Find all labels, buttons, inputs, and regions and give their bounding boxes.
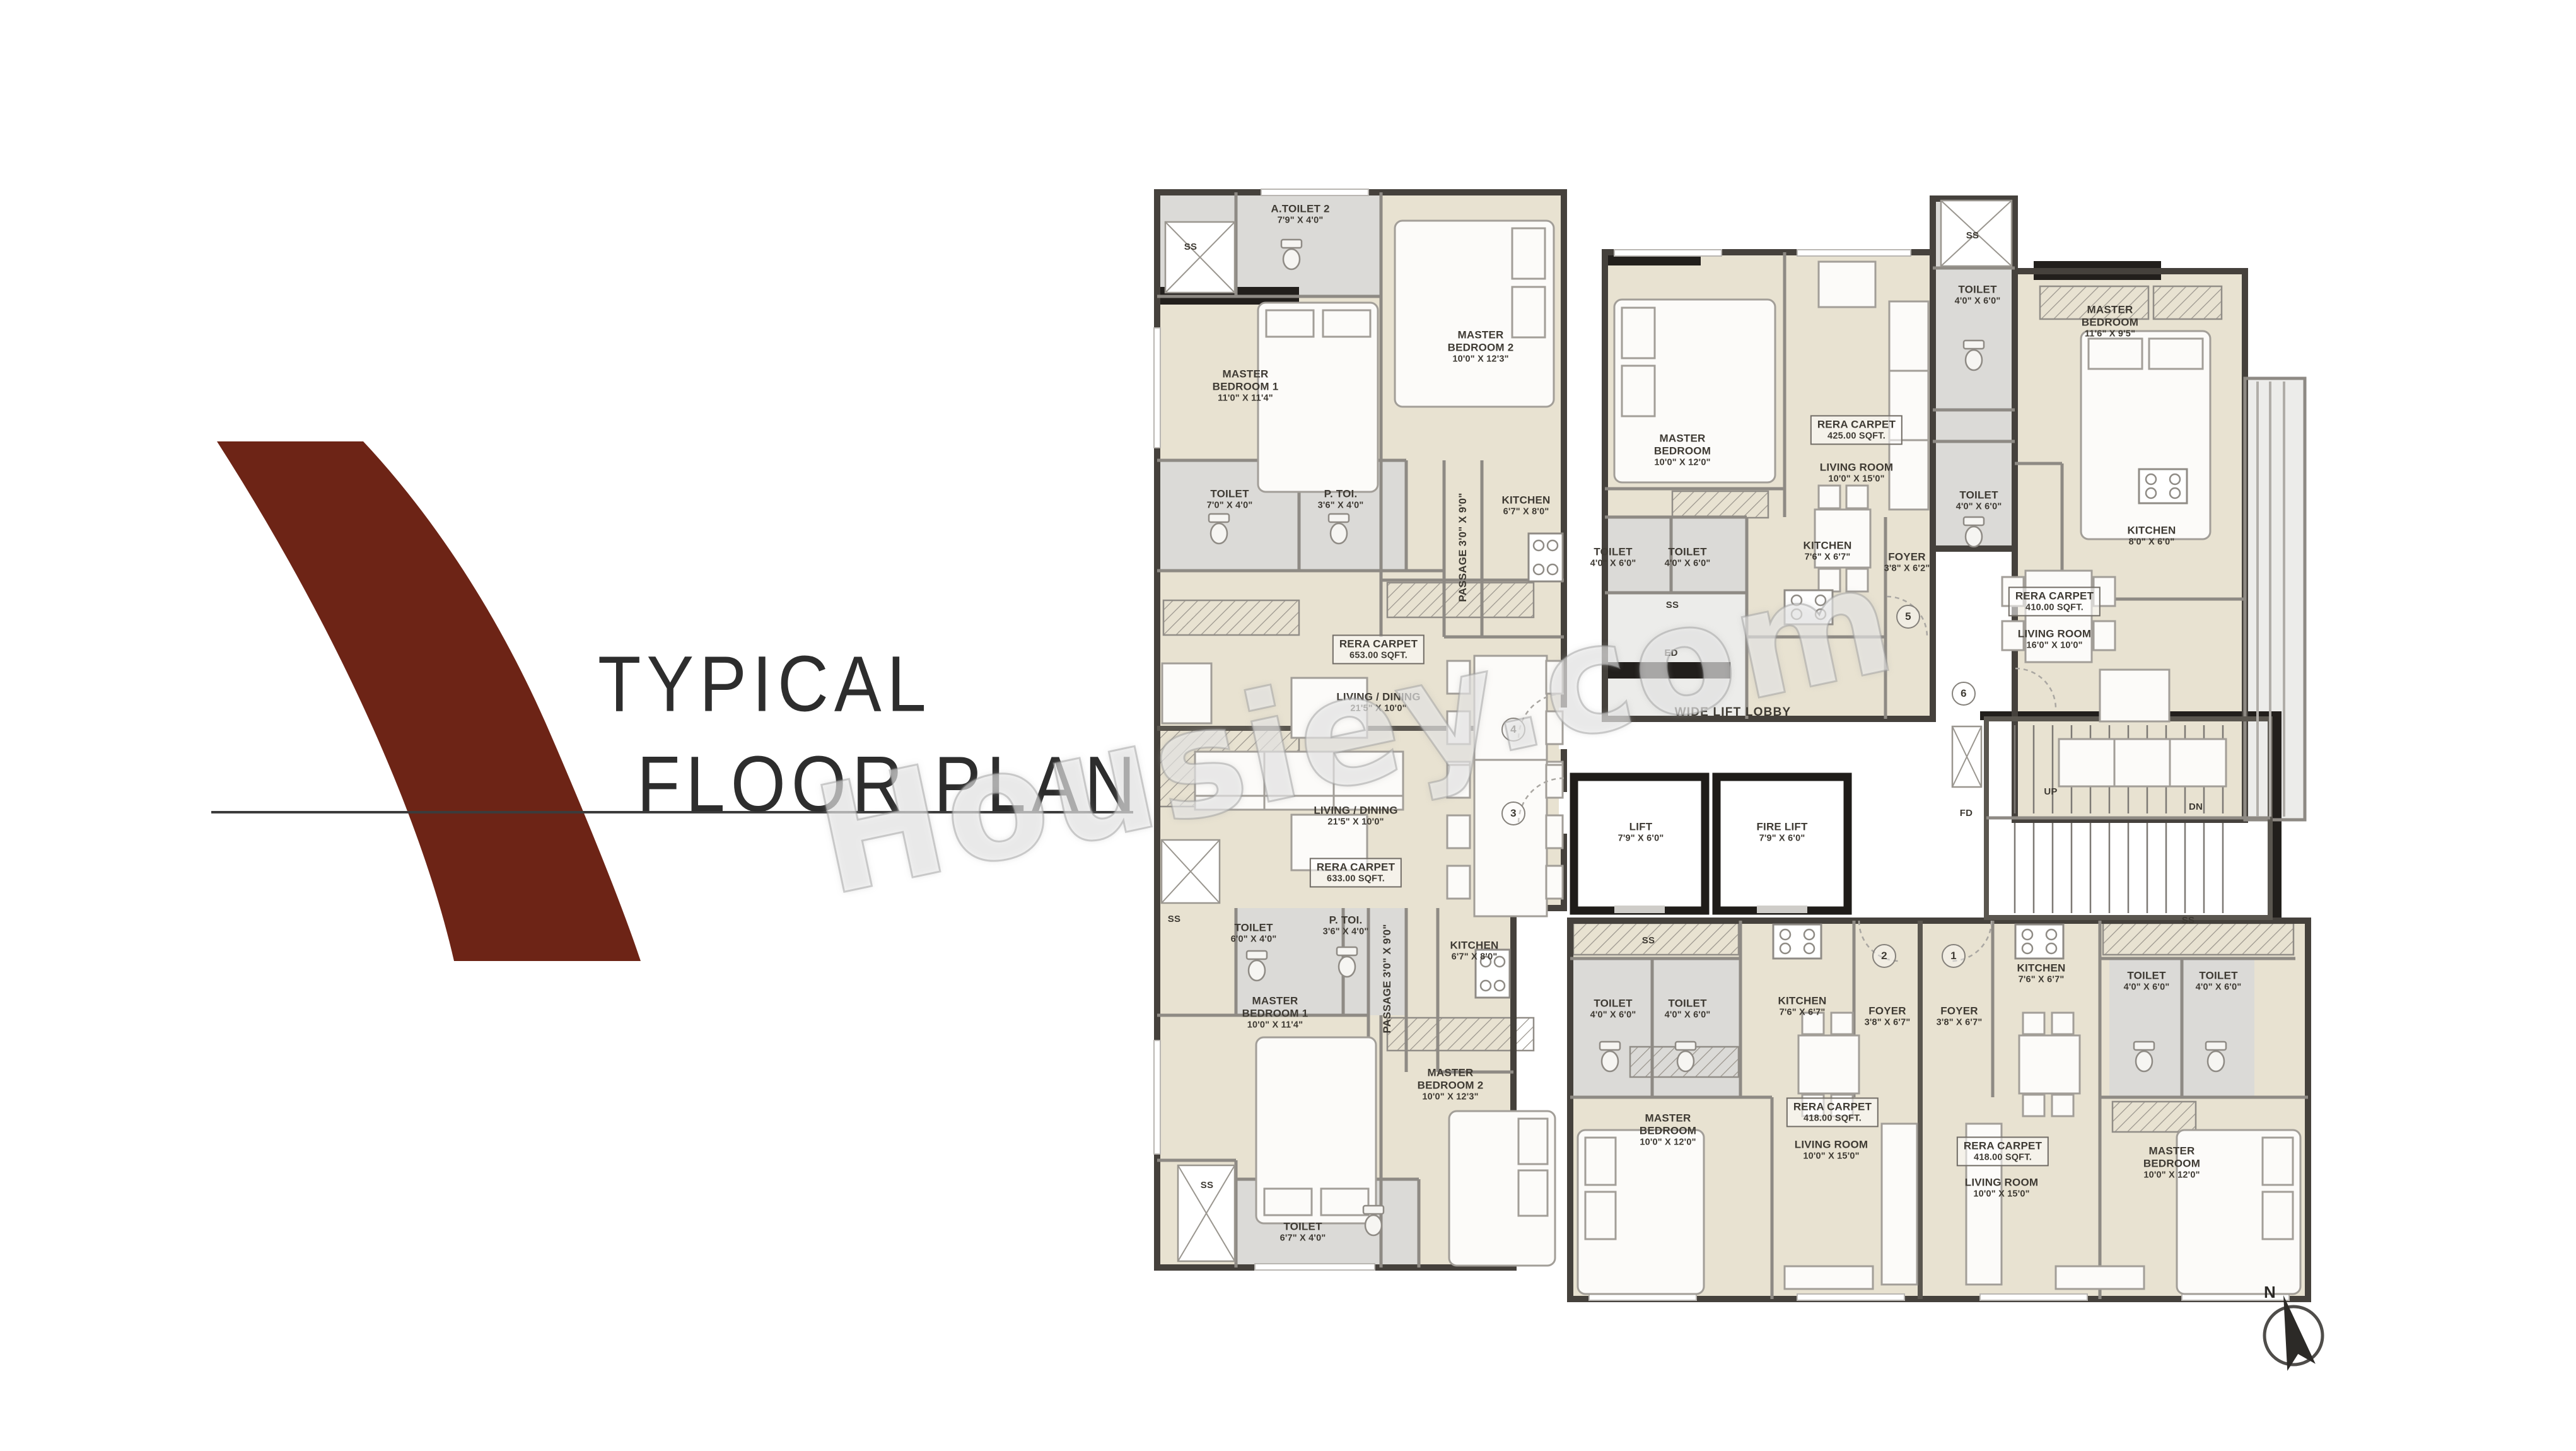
label-u1-living: LIVING ROOM10'0" X 15'0" xyxy=(1965,1176,2038,1199)
artboard: N TYPICAL FLOOR PLAN SSA.TOILET 27'9" X … xyxy=(0,0,2576,1451)
label-u1-kitchen: KITCHEN7'6" X 6'7" xyxy=(2017,962,2066,985)
label-u2-ss: SS xyxy=(1642,935,1655,947)
label-fire-lift: FIRE LIFT7'9" X 6'0" xyxy=(1756,820,1807,844)
label-u2-mb: MASTERBEDROOM10'0" X 12'0" xyxy=(1640,1112,1696,1148)
label-u3-ptoi: P. TOI.3'6" X 4'0" xyxy=(1323,914,1369,937)
label-c1: 1 xyxy=(1942,944,1966,968)
label-u5-living: LIVING ROOM10'0" X 15'0" xyxy=(1820,461,1893,484)
label-u4-ss: SS xyxy=(1184,242,1197,253)
label-u4-toilet: TOILET7'0" X 4'0" xyxy=(1207,487,1253,511)
label-u5-rera: RERA CARPET425.00 SQFT. xyxy=(1810,415,1903,445)
label-u3-livdin: LIVING / DINING21'5" X 10'0" xyxy=(1314,804,1397,827)
label-u5-ss: SS xyxy=(1666,600,1679,611)
label-u4-livdin: LIVING / DINING21'5" X 10'0" xyxy=(1336,691,1420,714)
label-dn: DN xyxy=(2189,801,2203,813)
label-u2-living: LIVING ROOM10'0" X 15'0" xyxy=(1795,1138,1868,1162)
label-fd: FD xyxy=(1960,808,1973,819)
label-u5-kitchen: KITCHEN7'6" X 6'7" xyxy=(1804,539,1852,562)
label-u1-rera: RERA CARPET418.00 SQFT. xyxy=(1957,1136,2049,1166)
label-u1-toilet-b: TOILET4'0" X 6'0" xyxy=(2196,969,2242,993)
label-u3-kitchen: KITCHEN6'7" X 8'0" xyxy=(1450,939,1499,962)
label-u5-ed: ED xyxy=(1664,648,1677,659)
label-u2-toilet-a: TOILET4'0" X 6'0" xyxy=(1590,997,1636,1020)
label-u6-mb: MASTERBEDROOM11'6" X 9'5" xyxy=(2082,303,2138,339)
label-lift: LIFT7'9" X 6'0" xyxy=(1618,820,1664,844)
label-u4-ptoi: P. TOI.3'6" X 4'0" xyxy=(1318,487,1364,511)
label-u3-ss-bottom: SS xyxy=(1201,1180,1213,1191)
label-u5-mb: MASTERBEDROOM10'0" X 12'0" xyxy=(1654,432,1711,468)
label-u4-mb1: MASTERBEDROOM 111'0" X 11'4" xyxy=(1213,368,1279,404)
label-u5-toilet-a: TOILET4'0" X 6'0" xyxy=(1590,545,1636,569)
label-u4-mb2: MASTERBEDROOM 210'0" X 12'3" xyxy=(1448,329,1514,364)
label-c3: 3 xyxy=(1501,801,1525,825)
label-u4-passage: PASSAGE 3'0" X 9'0" xyxy=(1457,492,1469,602)
label-u3-passage: PASSAGE 3'0" X 9'0" xyxy=(1381,924,1394,1033)
label-svc-toilet-a: TOILET4'0" X 6'0" xyxy=(1955,283,2001,306)
label-u3-ss-left: SS xyxy=(1168,914,1180,925)
label-u6-kitchen: KITCHEN8'0" X 6'0" xyxy=(2128,524,2176,547)
label-u6-living: LIVING ROOM16'0" X 10'0" xyxy=(2018,627,2091,651)
label-u5-toilet-b: TOILET4'0" X 6'0" xyxy=(1665,545,1711,569)
label-u3-toilet: TOILET6'0" X 4'0" xyxy=(1231,921,1277,945)
label-u1-mb: MASTERBEDROOM10'0" X 12'0" xyxy=(2143,1145,2200,1180)
plan-labels: SSA.TOILET 27'9" X 4'0"MASTERBEDROOM 111… xyxy=(0,0,2576,1451)
label-u4-atoilet2: A.TOILET 27'9" X 4'0" xyxy=(1271,202,1329,226)
label-u1-toilet-a: TOILET4'0" X 6'0" xyxy=(2124,969,2170,993)
label-u3-rera: RERA CARPET633.00 SQFT. xyxy=(1310,858,1402,887)
label-lobby: WIDE LIFT LOBBY xyxy=(1675,706,1792,720)
label-c2: 2 xyxy=(1872,944,1896,968)
label-u2-kitchen: KITCHEN7'6" X 6'7" xyxy=(1778,994,1827,1018)
label-u2-rera: RERA CARPET418.00 SQFT. xyxy=(1786,1097,1879,1127)
label-u2-toilet-b: TOILET4'0" X 6'0" xyxy=(1665,997,1711,1020)
label-u4-rera: RERA CARPET653.00 SQFT. xyxy=(1332,634,1425,664)
label-u3-mb1: MASTERBEDROOM 110'0" X 11'4" xyxy=(1242,994,1308,1030)
label-c4: 4 xyxy=(1501,718,1525,742)
label-c5: 5 xyxy=(1896,605,1920,629)
label-u6-rera: RERA CARPET410.00 SQFT. xyxy=(2008,586,2101,616)
label-u2-foyer: FOYER3'8" X 6'7" xyxy=(1865,1005,1911,1028)
label-svc-toilet-b: TOILET4'0" X 6'0" xyxy=(1956,489,2002,512)
label-c6: 6 xyxy=(1952,682,1976,706)
label-u3-mb2: MASTERBEDROOM 210'0" X 12'3" xyxy=(1418,1066,1484,1102)
label-u4-kitchen: KITCHEN6'7" X 8'0" xyxy=(1502,494,1551,517)
label-u1-ss: SS xyxy=(2182,915,2194,926)
label-up: UP xyxy=(2044,786,2057,798)
label-u3-toilet2: TOILET6'7" X 4'0" xyxy=(1280,1220,1326,1244)
label-svc-ss: SS xyxy=(1966,230,1979,242)
label-u5-foyer: FOYER3'8" X 6'2" xyxy=(1884,551,1930,574)
label-u1-foyer: FOYER3'8" X 6'7" xyxy=(1937,1005,1983,1028)
